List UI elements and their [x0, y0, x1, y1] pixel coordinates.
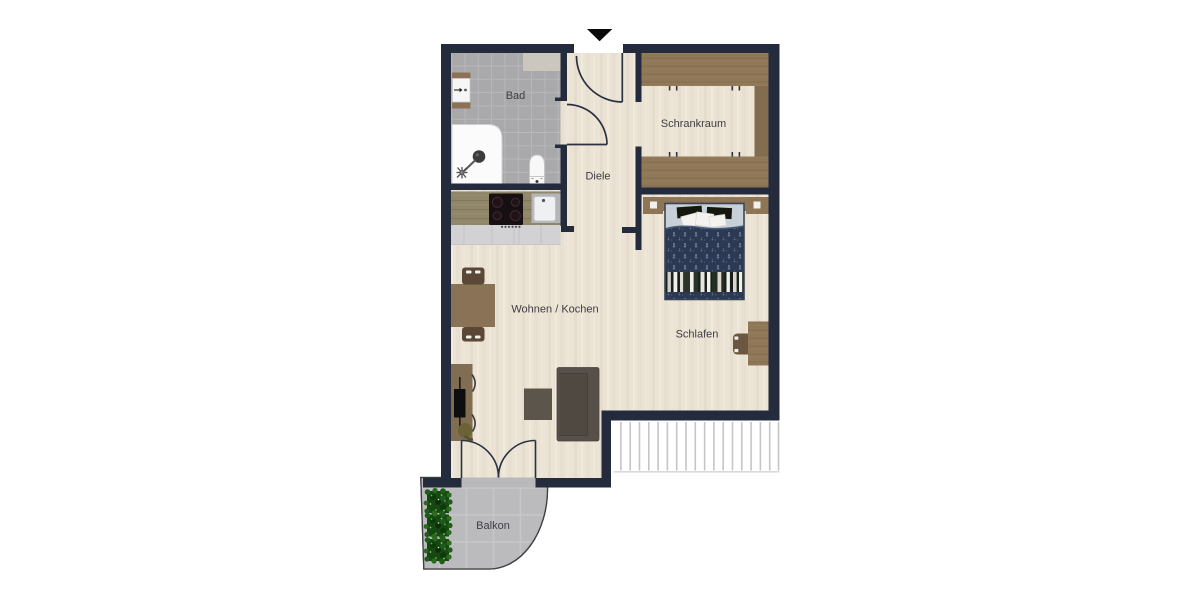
- svg-text:Wohnen / Kochen: Wohnen / Kochen: [511, 304, 598, 316]
- svg-text:Schrankraum: Schrankraum: [661, 118, 726, 130]
- svg-text:Schlafen: Schlafen: [676, 329, 719, 341]
- svg-text:Diele: Diele: [585, 171, 610, 183]
- svg-text:Balkon: Balkon: [476, 520, 510, 532]
- svg-text:Bad: Bad: [506, 90, 526, 102]
